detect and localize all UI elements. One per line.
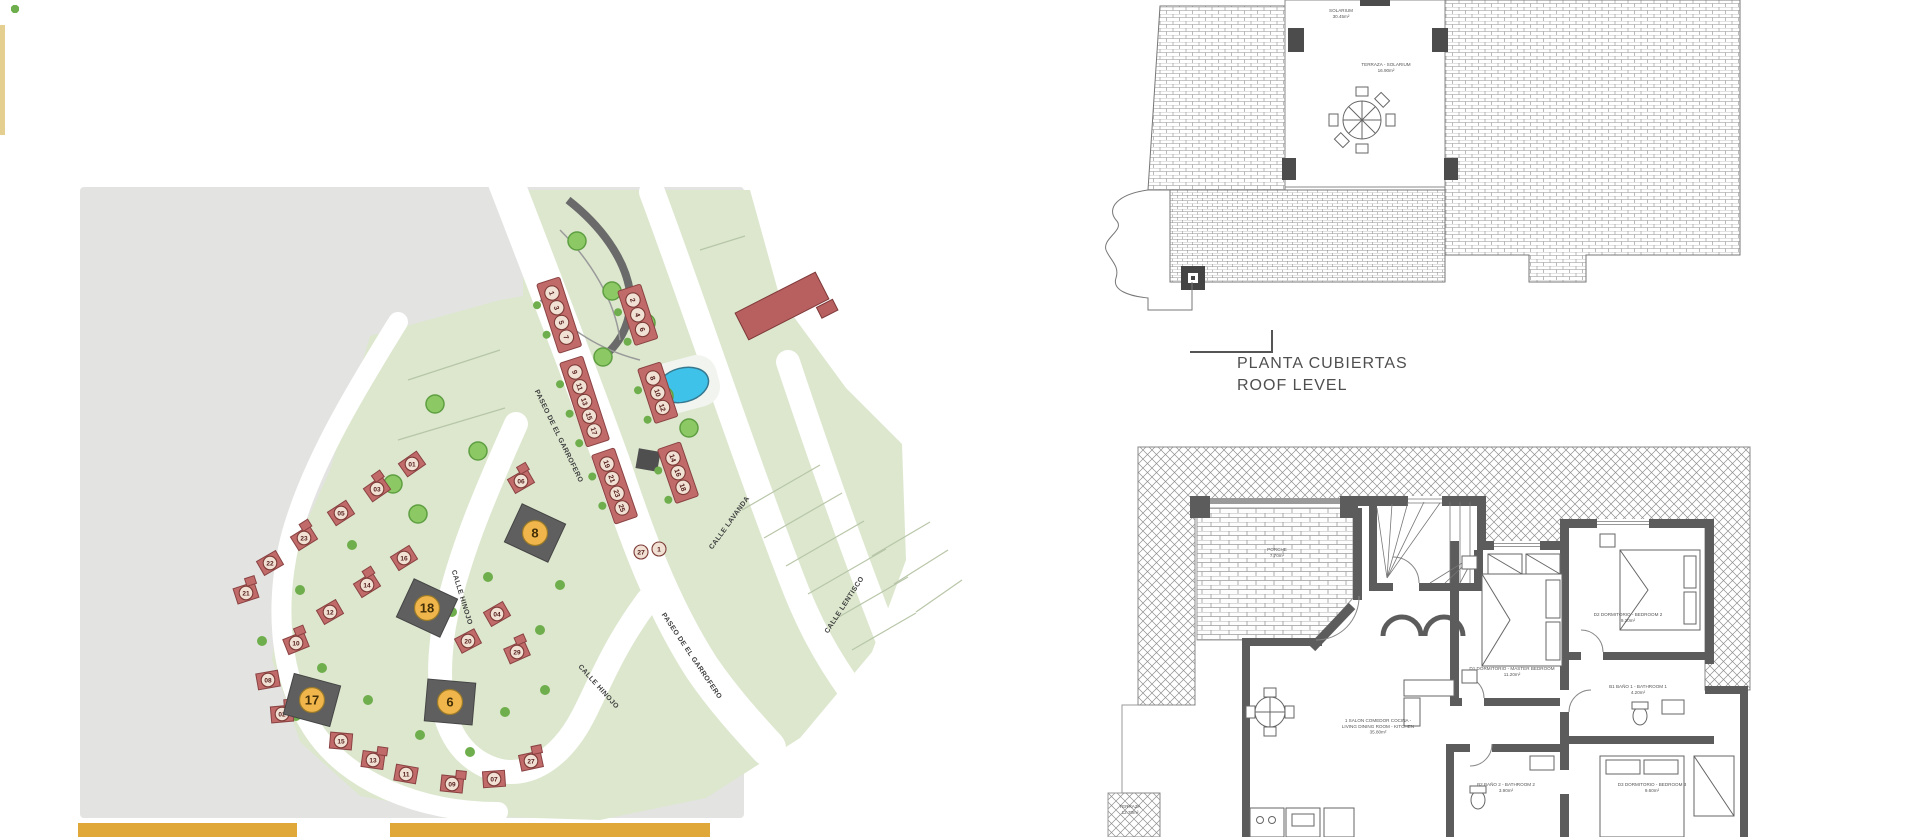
plot-number: 11 [403,771,410,778]
shrub-icon [317,663,327,673]
featured-plot-number: 6 [446,695,453,710]
shrub-icon [465,747,475,757]
house-wing [456,770,467,779]
roof-outline-step [1190,330,1272,352]
floor-plan: PORCHE7.70m²1 SALON COMEDOR COCINA -LIVI… [1108,447,1750,837]
room-label-line: LIVING DINING ROOM - KITCHEN [1342,724,1414,729]
left-accent-strip [0,25,5,135]
dining-table [1246,688,1294,736]
shrub-icon [415,730,425,740]
plot-number: 22 [266,560,274,567]
tree-icon [426,395,444,413]
room-label-line: TERRAZA - SOLARIUM [1361,62,1410,67]
plot-number: 05 [337,510,345,517]
shrub-icon [500,707,510,717]
bottom-accent-bar [390,823,710,837]
sofa [1404,680,1454,726]
tree-icon [409,505,427,523]
room-label-line: 4.20m² [1631,690,1646,695]
shrub-icon [535,625,545,635]
room-label-line: SOLARIUM [1329,8,1353,13]
room-label-line: B2 BAÑO 2 - BATHROOM 2 [1477,781,1535,787]
plot-number: 21 [242,590,250,597]
plot-number: 27 [527,758,535,765]
featured-plot-number: 18 [420,601,434,616]
room-label-line: D1 DORMITORIO - MASTER BEDROOM [1469,666,1554,671]
room-label: B1 BAÑO 1 - BATHROOM 14.20m² [1609,683,1667,695]
brochure-page: 1357911131517192123252468101214161801030… [0,0,1920,837]
room-label: PORCHE7.70m² [1267,547,1287,558]
room-label-line: 9.20m² [1621,618,1636,623]
shrub-icon [257,636,267,646]
tree-icon [469,442,487,460]
room-label-line: B1 BAÑO 1 - BATHROOM 1 [1609,683,1667,689]
site-plan-map: 1357911131517192123252468101214161801030… [11,5,962,820]
page-canvas: 1357911131517192123252468101214161801030… [0,0,1920,837]
kitchen-appliances [1250,808,1354,837]
plot-number: 16 [400,555,408,562]
shrub-icon [11,5,19,13]
roof-plan-title-es: PLANTA CUBIERTAS [1237,355,1408,372]
room-label: 1 SALON COMEDOR COCINA -LIVING DINING RO… [1342,718,1414,735]
roof-plan-title-en: ROOF LEVEL [1237,377,1347,394]
staircase [1377,502,1475,583]
featured-plot-number: 17 [305,693,319,708]
shrub-icon [555,580,565,590]
plot-number: 07 [490,776,498,783]
roof-vent [1181,266,1205,290]
unit-number: 1 [657,547,661,554]
room-label-line: D3 DORMITORIO - BEDROOM 3 [1618,782,1687,787]
room-label-line: 3.90m² [1499,788,1514,793]
room-label-line: 30.45m² [1333,14,1350,19]
roof-slab-lower [1170,190,1445,282]
plot-number: 23 [300,535,308,542]
room-label-line: 7.70m² [1270,553,1285,558]
shrub-icon [483,572,493,582]
plot-number: 13 [369,757,377,764]
room-label-line: 9.60m² [1645,788,1660,793]
unit-number: 27 [637,550,645,557]
shrub-icon [347,540,357,550]
featured-plot-number: 8 [531,526,538,541]
house-wing [377,747,388,756]
roof-plan: SOLARIUM30.45m²TERRAZA - SOLARIUM16.90m²… [1106,0,1740,394]
bathroom1-fixtures [1632,700,1684,725]
plot-number: 04 [493,611,501,618]
room-label-line: 16.90m² [1378,68,1395,73]
shrub-icon [295,585,305,595]
bottom-accent-bar [78,823,297,837]
hall-wardrobes [1488,554,1560,574]
plot-number: 01 [408,461,416,468]
room-label-line: D2 DORMITORIO - BEDROOM 2 [1594,612,1663,617]
tree-icon [568,232,586,250]
shrub-icon [540,685,550,695]
plot-number: 20 [464,638,472,645]
plot-number: 12 [326,609,334,616]
plot-number: 10 [292,640,300,647]
tree-icon [680,419,698,437]
room-label-line: 35.80m² [1370,730,1387,735]
plot-number: 14 [363,582,371,589]
plot-number: 09 [448,781,456,788]
porch-paving [1197,508,1353,640]
plot-number: 29 [513,649,521,656]
room-label: TERRAZA12.70m² [1119,804,1141,815]
room-label-line: 12.70m² [1122,810,1139,815]
room-label-line: 11.20m² [1504,672,1521,677]
plot-number: 03 [373,486,381,493]
room-label-line: 1 SALON COMEDOR COCINA - [1345,718,1412,723]
room-label-line: TERRAZA [1119,804,1141,809]
tree-icon [594,348,612,366]
terrace-paving-corner [1108,793,1160,837]
plot-number: 15 [337,738,345,745]
plot-number: 06 [517,478,525,485]
room-label: D1 DORMITORIO - MASTER BEDROOM11.20m² [1469,666,1554,677]
room-label-line: PORCHE [1267,547,1287,552]
bed-d3 [1600,756,1734,837]
house-wing [531,745,542,755]
roof-slab-right [1445,0,1740,282]
roof-slab-left [1148,6,1285,190]
plot-number: 08 [264,677,272,684]
shrub-icon [363,695,373,705]
